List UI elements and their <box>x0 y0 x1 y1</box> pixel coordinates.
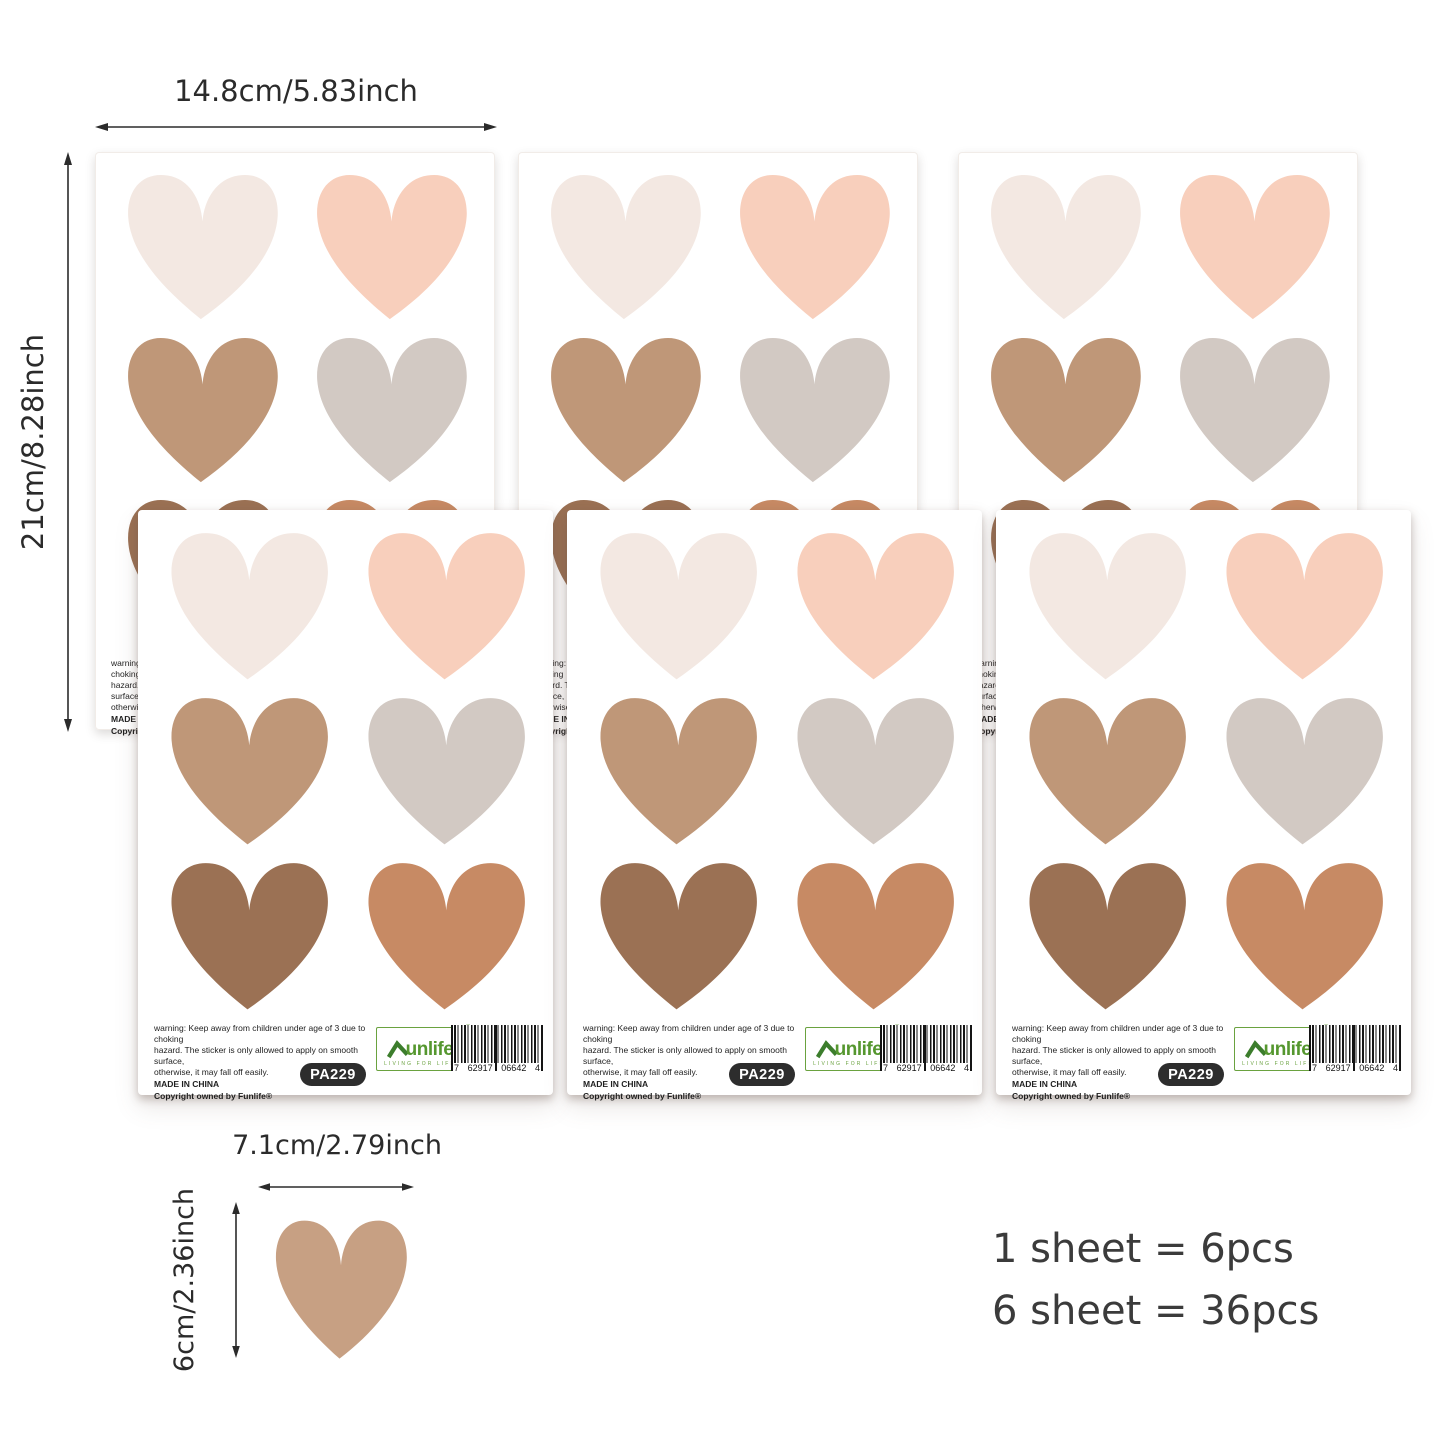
barcode: 7 62917 06642 4 <box>1309 1025 1401 1077</box>
barcode-digit-group: 4 <box>964 1063 969 1075</box>
barcode-digits: 7 62917 06642 4 <box>883 1063 969 1075</box>
copyright-text: Copyright owned by Funlife® <box>1012 1091 1224 1102</box>
logo-tagline: LIVING FOR LIFE <box>1242 1061 1314 1067</box>
hearts-grid <box>591 524 962 1015</box>
logo-brand-text: unlife <box>406 1040 454 1059</box>
hearts-grid <box>162 524 533 1015</box>
heart-sticker-brown <box>162 854 337 1015</box>
barcode: 7 62917 06642 4 <box>451 1025 543 1077</box>
warning-line: warning: Keep away from children under a… <box>583 1023 795 1045</box>
hearts-grid <box>1020 524 1391 1015</box>
barcode-digit-group: 7 <box>454 1063 459 1075</box>
heart-sticker-cream <box>119 166 286 325</box>
heart-sticker-terracotta <box>359 854 534 1015</box>
barcode-digit-group: 7 <box>883 1063 888 1075</box>
heart-sticker-cream <box>542 166 709 325</box>
warning-line: warning: Keep away from children under a… <box>154 1023 366 1045</box>
heart-sticker-terracotta <box>788 854 963 1015</box>
barcode-digits: 7 62917 06642 4 <box>1312 1063 1398 1075</box>
sheet-height-arrow <box>61 152 75 732</box>
heart-sticker-gray <box>1217 689 1392 850</box>
heart-sticker-tan <box>119 329 286 488</box>
heart-sticker-cream <box>1020 524 1195 685</box>
barcode-digits: 7 62917 06642 4 <box>454 1063 540 1075</box>
heart-sticker-gray <box>359 689 534 850</box>
warning-line: warning: Keep away from children under a… <box>1012 1023 1224 1045</box>
heart-sticker-cream <box>982 166 1149 325</box>
heart-sticker-peach <box>788 524 963 685</box>
sheet-width-arrow <box>95 120 497 134</box>
barcode-digit-group: 7 <box>1312 1063 1317 1075</box>
heart-sticker-tan <box>982 329 1149 488</box>
barcode-digit-group: 62917 <box>468 1063 493 1075</box>
heart-sticker-peach <box>1171 166 1338 325</box>
barcode-digit-group: 06642 <box>930 1063 955 1075</box>
heart-sticker-cream <box>591 524 766 685</box>
barcode-guard <box>1309 1025 1311 1071</box>
sticker-sheet-front-3: warning: Keep away from children under a… <box>996 510 1411 1095</box>
heart-sticker-tan <box>542 329 709 488</box>
barcode-guard <box>880 1025 882 1071</box>
barcode: 7 62917 06642 4 <box>880 1025 972 1077</box>
sheet-width-label: 14.8cm/5.83inch <box>95 74 497 108</box>
barcode-guard <box>451 1025 453 1071</box>
logo-tagline: LIVING FOR LIFE <box>384 1061 456 1067</box>
heart-width-arrow <box>258 1180 414 1194</box>
heart-sticker-cream <box>162 524 337 685</box>
heart-sticker-peach <box>359 524 534 685</box>
logo-row: unlife <box>1245 1040 1312 1059</box>
product-image-canvas: warning: Keep away from children under a… <box>0 0 1445 1445</box>
barcode-digit-group: 62917 <box>897 1063 922 1075</box>
logo-brand-text: unlife <box>835 1040 883 1059</box>
copyright-text: Copyright owned by Funlife® <box>583 1091 795 1102</box>
heart-sticker-gray <box>1171 329 1338 488</box>
heart-height-label: 6cm/2.36inch <box>169 1130 205 1430</box>
heart-sticker-tan <box>591 689 766 850</box>
barcode-digit-group: 62917 <box>1326 1063 1351 1075</box>
heart-height-arrow <box>229 1202 243 1358</box>
single-heart <box>268 1212 414 1364</box>
sheet-footer: warning: Keep away from children under a… <box>567 1015 982 1095</box>
sheet-height-label: 21cm/8.28inch <box>16 282 52 602</box>
heart-sticker-gray <box>731 329 898 488</box>
heart-sticker-tan <box>1020 689 1195 850</box>
logo-tagline: LIVING FOR LIFE <box>813 1061 885 1067</box>
pcs-equation-2: 6 sheet = 36pcs <box>992 1280 1319 1342</box>
heart-sticker-peach <box>731 166 898 325</box>
model-badge: PA229 <box>300 1063 366 1086</box>
copyright-text: Copyright owned by Funlife® <box>154 1091 366 1102</box>
sticker-sheet-front-2: warning: Keep away from children under a… <box>567 510 982 1095</box>
barcode-digit-group: 4 <box>535 1063 540 1075</box>
barcode-guard <box>541 1025 543 1071</box>
heart-sticker-gray <box>788 689 963 850</box>
logo-row: unlife <box>816 1040 883 1059</box>
logo-row: unlife <box>387 1040 454 1059</box>
sticker-sheet-front-1: warning: Keep away from children under a… <box>138 510 553 1095</box>
piece-count-block: 1 sheet = 6pcs 6 sheet = 36pcs <box>992 1218 1319 1342</box>
barcode-digit-group: 06642 <box>1359 1063 1384 1075</box>
model-badge: PA229 <box>1158 1063 1224 1086</box>
barcode-guard <box>970 1025 972 1071</box>
heart-sticker-peach <box>308 166 475 325</box>
heart-sticker-tan <box>162 689 337 850</box>
barcode-digit-group: 06642 <box>501 1063 526 1075</box>
heart-sticker-peach <box>1217 524 1392 685</box>
logo-brand-text: unlife <box>1264 1040 1312 1059</box>
sheet-footer: warning: Keep away from children under a… <box>138 1015 553 1095</box>
heart-width-label: 7.1cm/2.79inch <box>187 1130 487 1161</box>
heart-sticker-terracotta <box>1217 854 1392 1015</box>
model-badge: PA229 <box>729 1063 795 1086</box>
heart-sticker-brown <box>591 854 766 1015</box>
heart-sticker-gray <box>308 329 475 488</box>
sheet-footer: warning: Keep away from children under a… <box>996 1015 1411 1095</box>
barcode-guard <box>1399 1025 1401 1071</box>
heart-sticker-brown <box>1020 854 1195 1015</box>
pcs-equation-1: 1 sheet = 6pcs <box>992 1218 1319 1280</box>
barcode-digit-group: 4 <box>1393 1063 1398 1075</box>
